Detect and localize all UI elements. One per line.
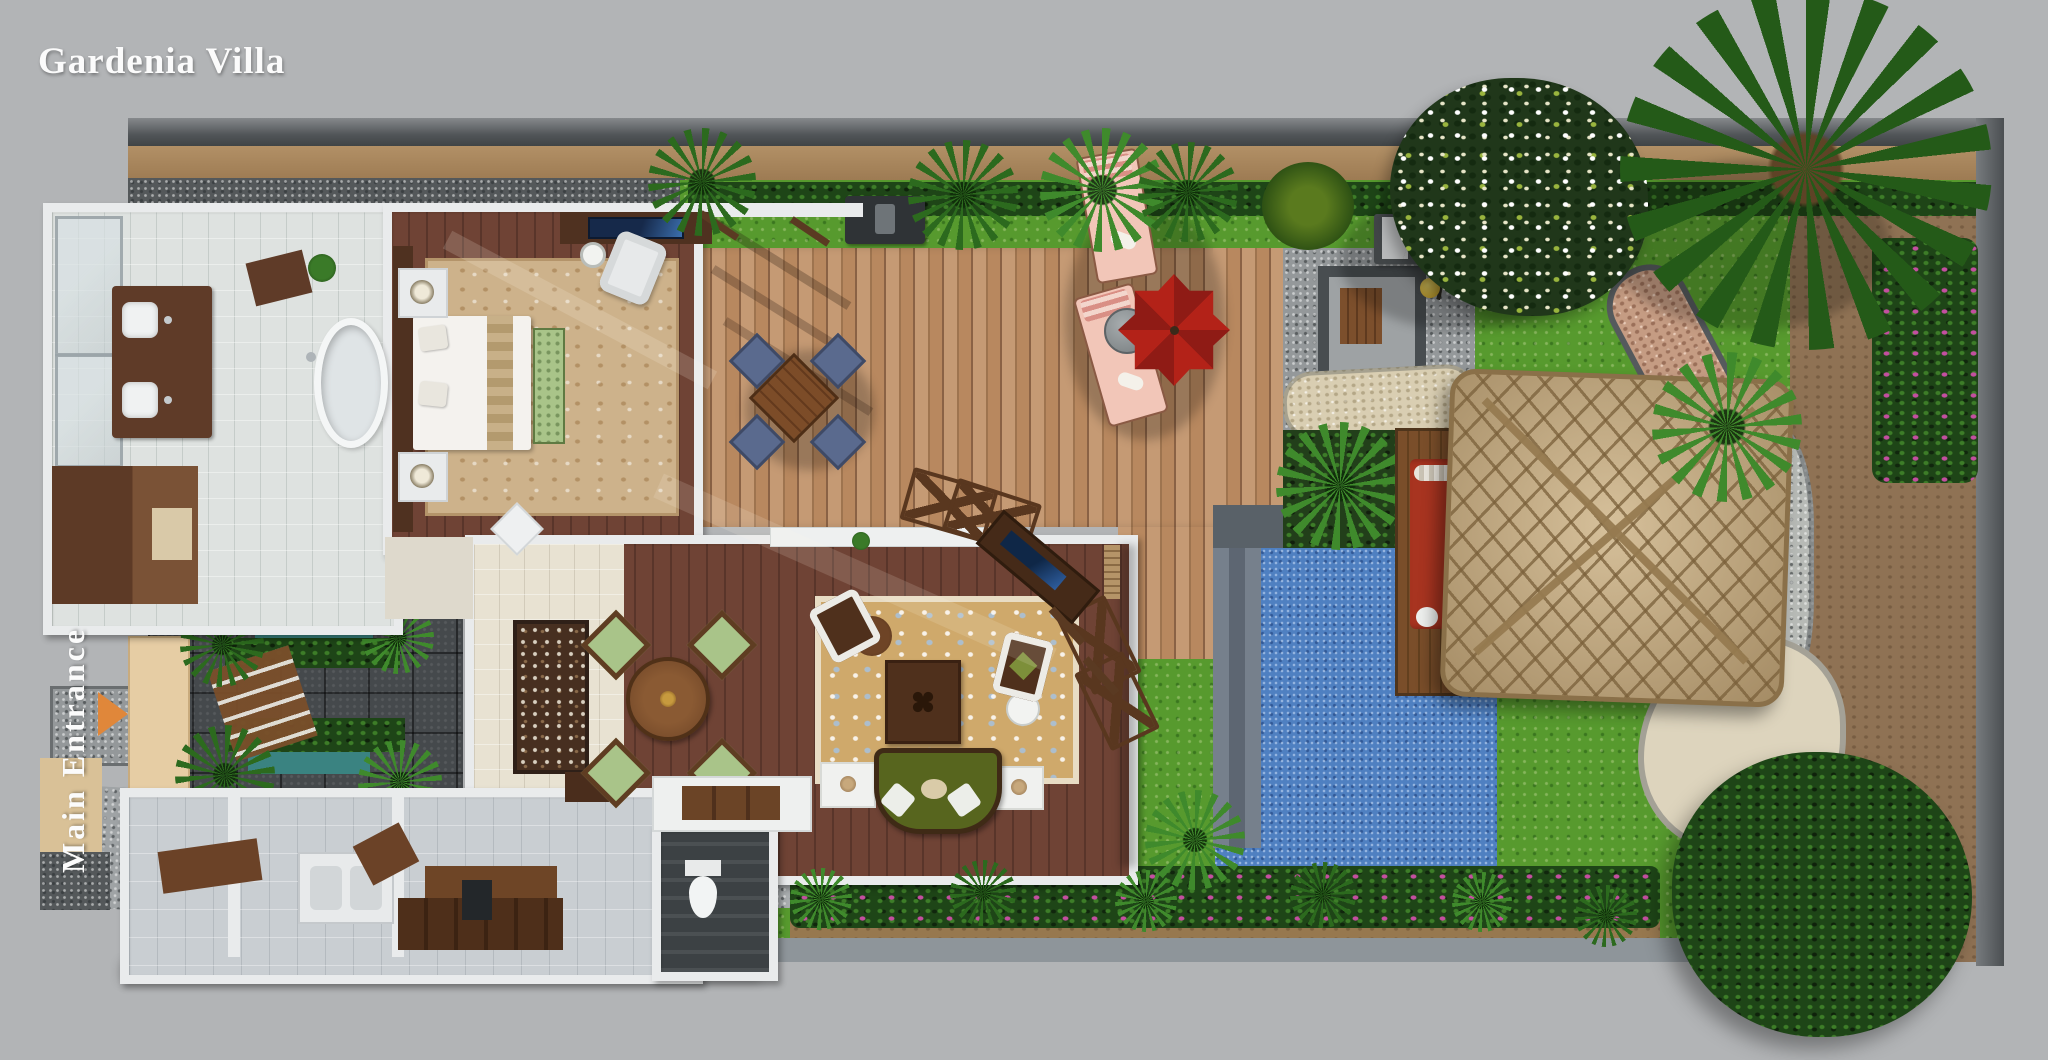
bed-runner [487,316,513,450]
nightstand-south [398,452,448,502]
boundary-wall-right [1976,118,2004,966]
bed-pillow-2 [418,381,448,408]
table-centerpiece [660,691,676,707]
big-palm-tree [1620,0,1992,350]
dining-table-round [626,657,710,741]
toilet-bowl [689,876,717,918]
bathtub [314,318,388,448]
poolside-fan-palm [1276,422,1404,550]
sofa-pillow-2 [946,782,982,818]
bbq-lid-handle [875,204,895,234]
fridge [462,880,492,920]
lounger-2-towel [1116,371,1145,393]
nightstand-north [398,268,448,318]
coffee-table [885,660,961,744]
louver-panel [1104,545,1120,599]
shell-decor-east [1011,779,1027,795]
table-lamp-north [410,280,434,304]
side-table-west [820,762,876,808]
sofa-bolster [921,779,947,799]
birds-nest-fern [1262,162,1354,250]
sofa [874,748,1002,834]
foyer-runner-rug [513,620,589,774]
umbrella-pole [1170,326,1179,335]
bed-bench [533,328,565,444]
lawn-palm-north-1 [648,128,756,236]
lawn-palm-south [1145,790,1245,890]
hedge-palm-2 [950,860,1016,926]
double-vanity [112,286,212,438]
bed-pillow-1 [417,324,448,352]
kitchen-bar [652,776,812,832]
hedge-palm-4 [1290,862,1356,928]
hedge-palm-5 [1452,872,1512,932]
floor-lamp-bedroom [580,242,606,268]
page-title: Gardenia Villa [38,40,285,83]
toilet-tank [685,860,721,876]
south-curb [755,938,1690,962]
shell-decor-west [840,776,856,792]
vanity-faucet-1 [164,316,172,324]
bath-plant [308,254,336,282]
bath-faucet [306,352,316,362]
vanity-faucet-2 [164,396,172,404]
vanity-sink-2 [122,382,158,418]
vanity-sink-1 [122,302,158,338]
bed [413,316,531,450]
entrance-arrow-icon [98,692,128,736]
hedge-palm-1 [790,868,852,930]
sill-plant [852,532,870,550]
big-hedge-shrub [1672,752,1972,1037]
palm-east-mid [1652,352,1802,502]
wc-room [652,823,778,981]
daybed-pillow-1 [1416,607,1438,627]
sofa-pillow-1 [880,782,917,819]
bar-trays [682,786,780,820]
closet-mat [152,508,192,560]
lawn-palm-north-2 [908,140,1018,250]
table-lamp-south [410,464,434,488]
main-entrance-label: Main Entrance [55,570,95,930]
washer-door [310,866,342,910]
wooden-deck-ne [1213,248,1283,505]
hall-tile [385,537,473,619]
villa-floor-plan: Gardenia Villa Main Entrance [0,0,2048,1060]
hedge-palm-6 [1575,885,1637,947]
lawn-palm-north-4 [1138,142,1238,242]
table-flower-decor [910,689,936,715]
